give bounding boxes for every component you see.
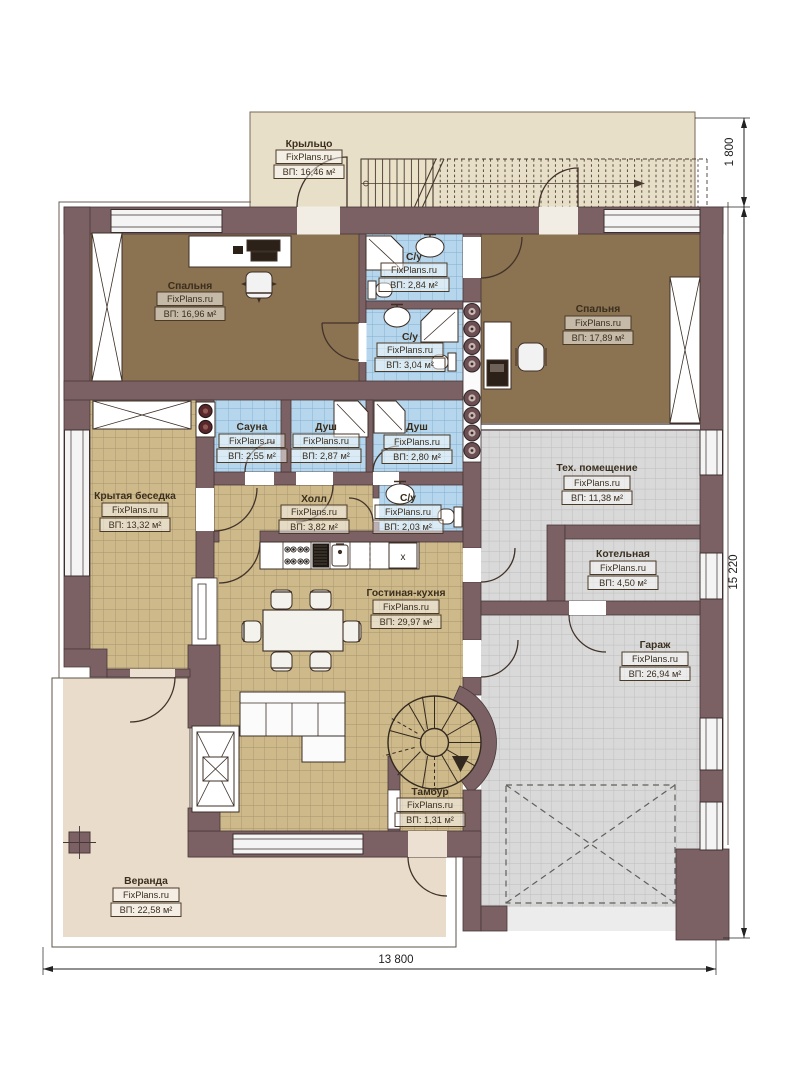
svg-text:С/у: С/у [400,493,416,504]
svg-text:ВП: 26,94 м²: ВП: 26,94 м² [629,669,682,679]
svg-text:FixPlans.ru: FixPlans.ru [632,654,678,664]
svg-text:Гараж: Гараж [640,640,671,651]
svg-text:Гостиная-кухня: Гостиная-кухня [367,588,446,599]
svg-text:Холл: Холл [301,494,327,505]
svg-text:FixPlans.ru: FixPlans.ru [123,890,169,900]
svg-text:ВП: 22,58 м²: ВП: 22,58 м² [120,905,173,915]
svg-text:С/у: С/у [406,252,422,263]
svg-text:ВП: 4,50 м²: ВП: 4,50 м² [599,578,647,588]
svg-text:x: x [401,552,406,563]
svg-text:FixPlans.ru: FixPlans.ru [394,437,440,447]
svg-text:ВП: 2,84 м²: ВП: 2,84 м² [390,280,438,290]
svg-text:С/у: С/у [402,332,418,343]
svg-text:ВП: 17,89 м²: ВП: 17,89 м² [572,333,625,343]
svg-text:FixPlans.ru: FixPlans.ru [600,563,646,573]
svg-text:FixPlans.ru: FixPlans.ru [387,345,433,355]
svg-text:ВП: 11,38 м²: ВП: 11,38 м² [571,493,623,503]
svg-text:FixPlans.ru: FixPlans.ru [574,478,620,488]
svg-text:Сауна: Сауна [237,422,268,433]
svg-text:Душ: Душ [406,422,428,433]
svg-text:FixPlans.ru: FixPlans.ru [286,152,332,162]
svg-text:Душ: Душ [315,422,337,433]
svg-text:13 800: 13 800 [378,954,413,966]
svg-text:Котельная: Котельная [596,549,650,560]
svg-text:ВП: 16,46 м²: ВП: 16,46 м² [283,167,336,177]
svg-text:ВП: 1,31 м²: ВП: 1,31 м² [406,815,454,825]
svg-text:ВП: 13,32 м²: ВП: 13,32 м² [109,520,162,530]
svg-text:Спальня: Спальня [576,304,620,315]
svg-text:ВП: 29,97 м²: ВП: 29,97 м² [380,617,433,627]
svg-text:ВП: 2,80 м²: ВП: 2,80 м² [393,452,441,462]
svg-text:ВП: 2,03 м²: ВП: 2,03 м² [384,522,432,532]
svg-text:FixPlans.ru: FixPlans.ru [385,507,431,517]
svg-text:FixPlans.ru: FixPlans.ru [407,800,453,810]
svg-text:FixPlans.ru: FixPlans.ru [229,436,275,446]
svg-text:15 220: 15 220 [728,554,740,589]
svg-text:1 800: 1 800 [724,138,736,167]
svg-text:Тех. помещение: Тех. помещение [556,463,637,474]
svg-text:ВП: 16,96 м²: ВП: 16,96 м² [164,309,217,319]
svg-text:Крытая беседка: Крытая беседка [94,490,176,502]
svg-text:ВП: 3,82 м²: ВП: 3,82 м² [290,522,338,532]
svg-text:FixPlans.ru: FixPlans.ru [575,318,621,328]
svg-text:Веранда: Веранда [124,876,168,887]
svg-text:FixPlans.ru: FixPlans.ru [112,505,158,515]
svg-text:FixPlans.ru: FixPlans.ru [167,294,213,304]
svg-text:FixPlans.ru: FixPlans.ru [303,436,349,446]
svg-text:Спальня: Спальня [168,281,212,292]
svg-text:ВП: 2,55 м²: ВП: 2,55 м² [228,451,276,461]
svg-text:FixPlans.ru: FixPlans.ru [391,265,437,275]
svg-text:FixPlans.ru: FixPlans.ru [383,602,429,612]
svg-text:Крыльцо: Крыльцо [286,139,333,150]
svg-text:ВП: 3,04 м²: ВП: 3,04 м² [386,360,434,370]
svg-text:FixPlans.ru: FixPlans.ru [291,507,337,517]
svg-text:Тамбур: Тамбур [411,786,448,798]
svg-text:ВП: 2,87 м²: ВП: 2,87 м² [302,451,350,461]
